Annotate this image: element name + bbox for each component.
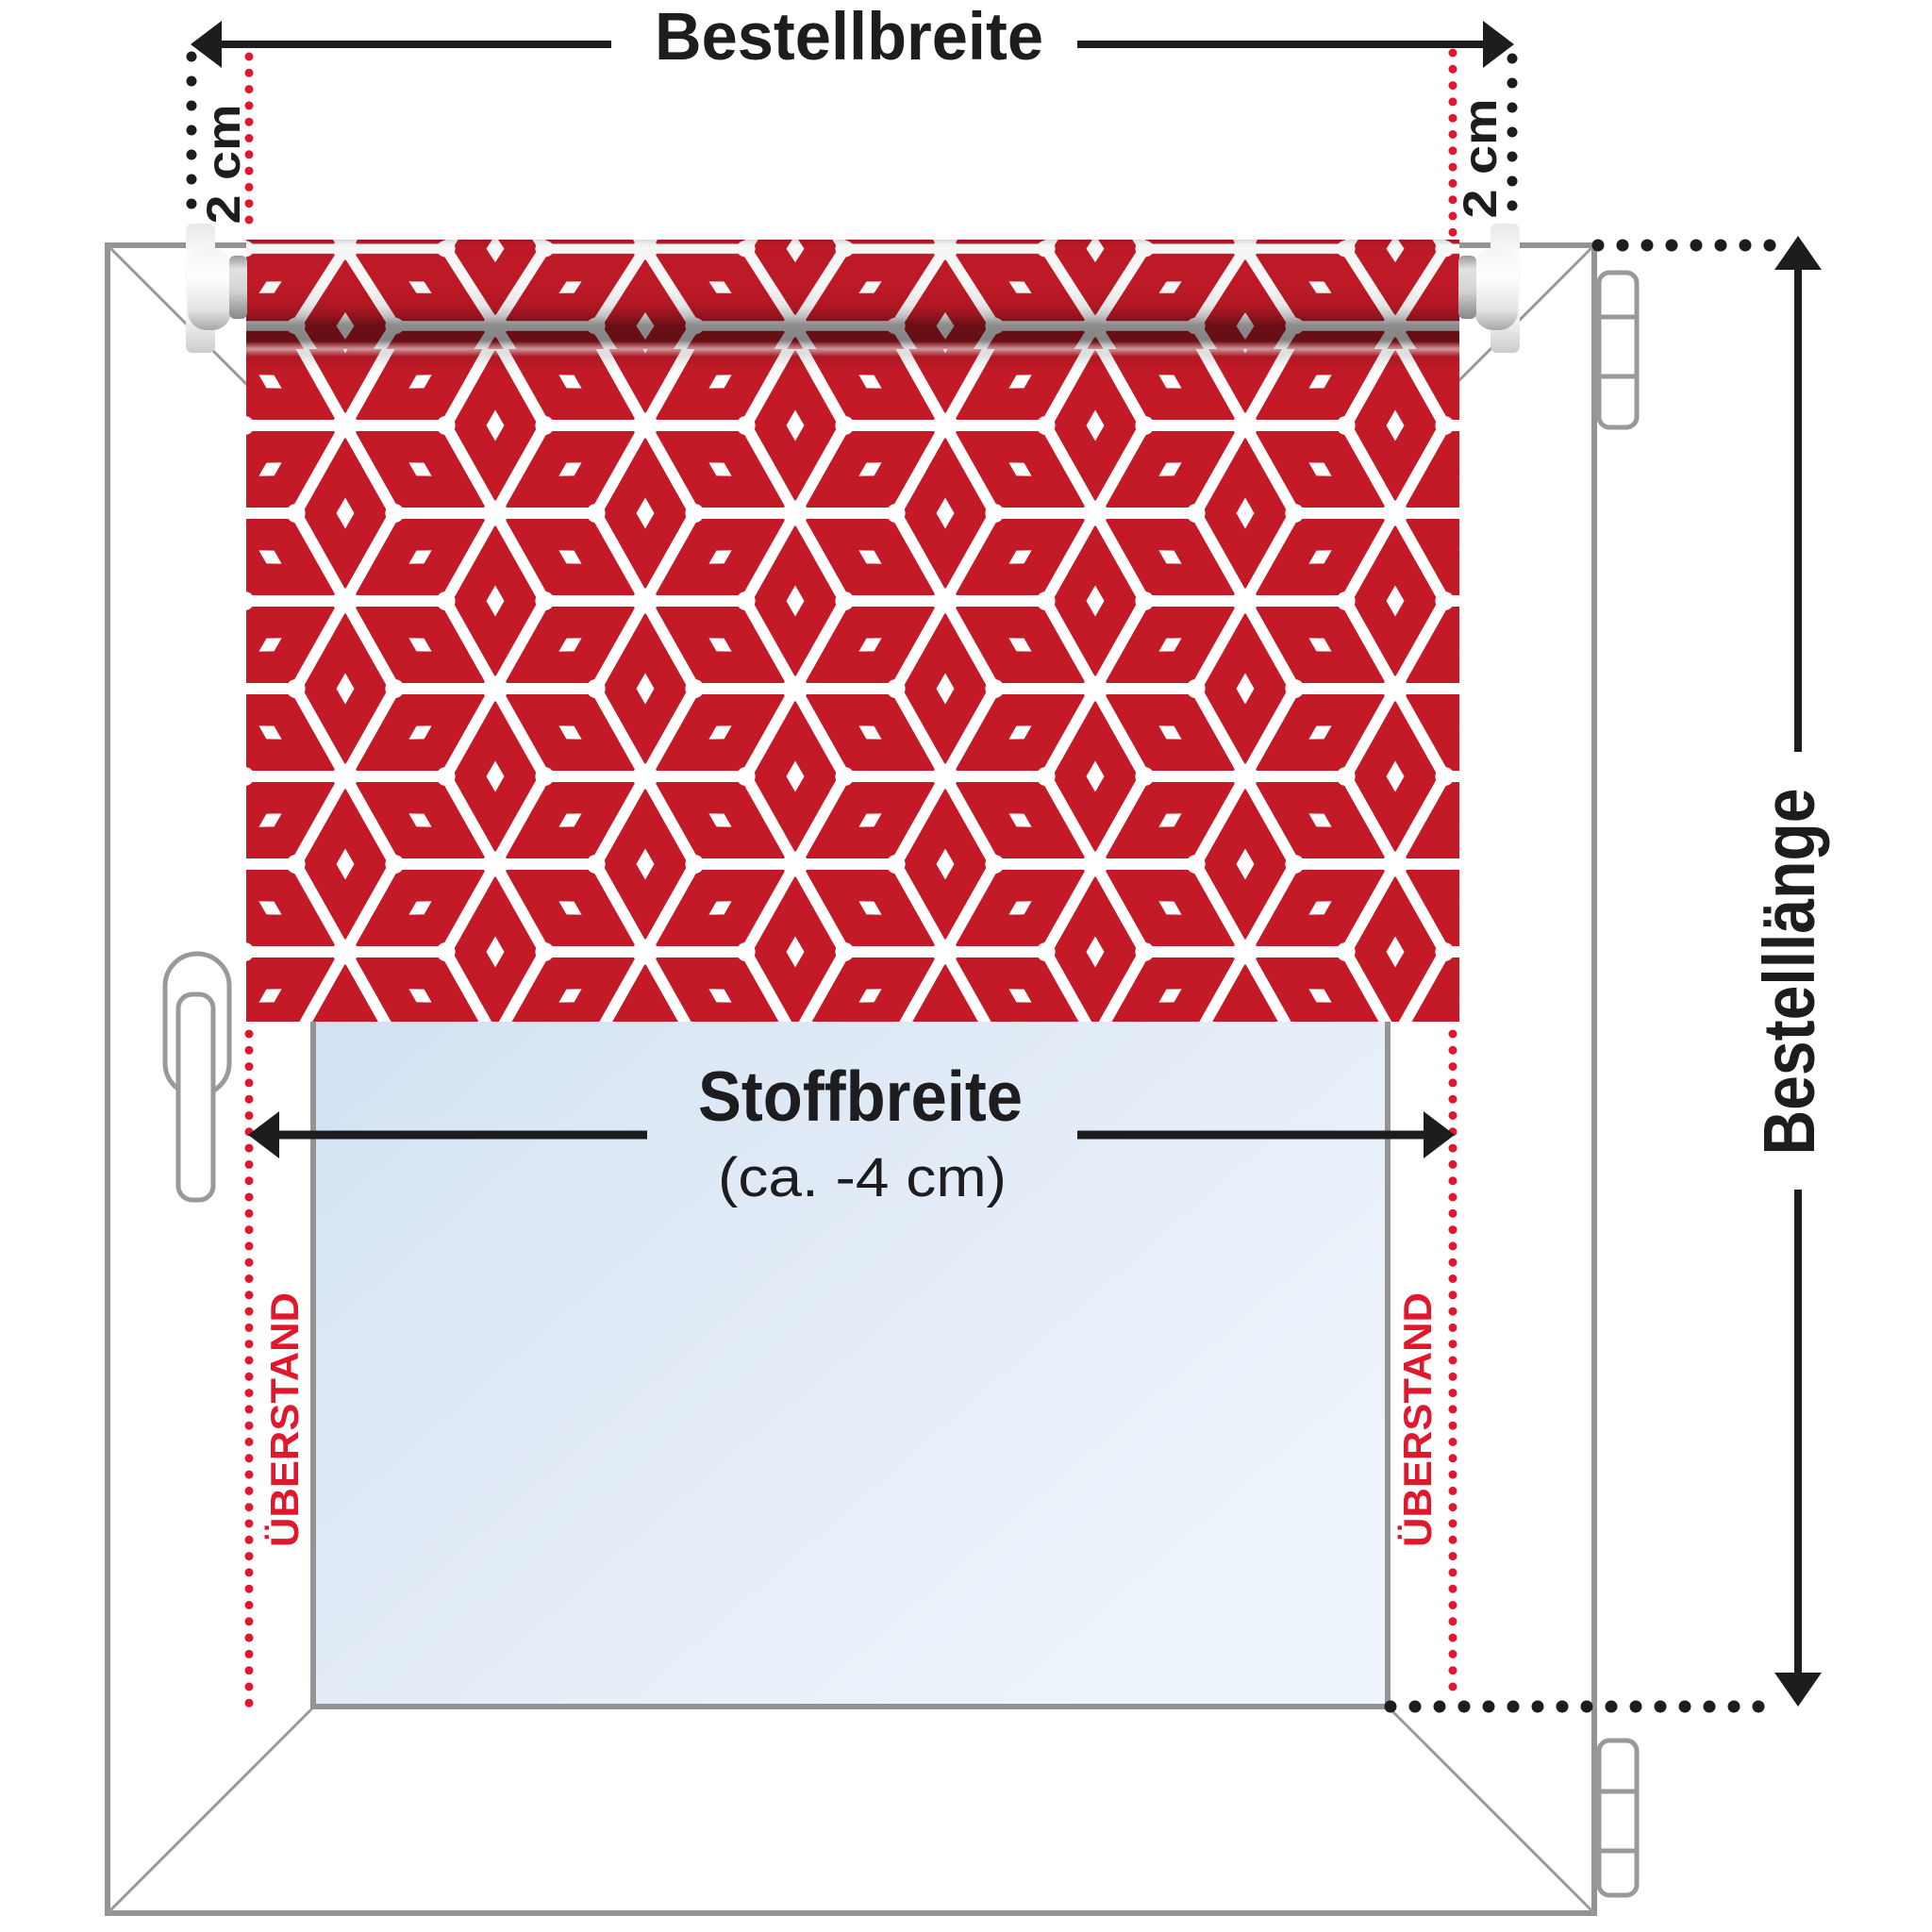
svg-text:Stoffbreite: Stoffbreite (698, 1057, 1023, 1136)
svg-text:ÜBERSTAND: ÜBERSTAND (262, 1292, 307, 1547)
svg-text:(ca. -4 cm): (ca. -4 cm) (718, 1147, 1007, 1208)
svg-text:Bestelllänge: Bestelllänge (1749, 789, 1830, 1156)
svg-text:ÜBERSTAND: ÜBERSTAND (1395, 1292, 1440, 1547)
svg-text:2 cm: 2 cm (197, 105, 250, 225)
svg-text:2 cm: 2 cm (1454, 99, 1507, 219)
svg-text:Bestellbreite: Bestellbreite (655, 0, 1043, 75)
